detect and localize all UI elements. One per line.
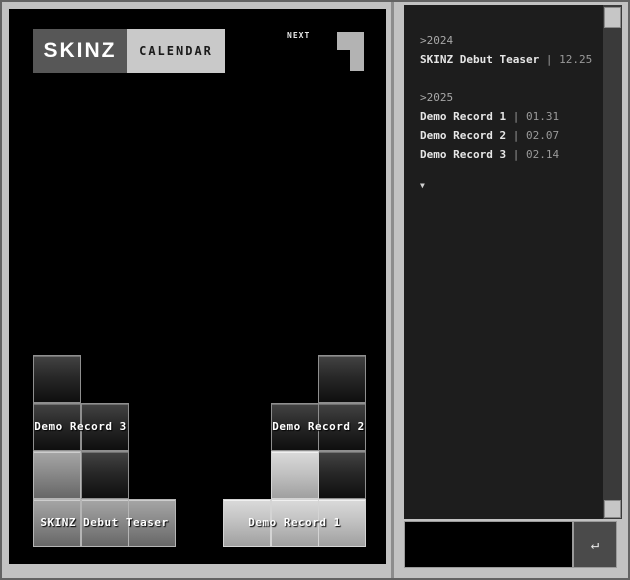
scrollbar-thumb[interactable]: [604, 7, 621, 28]
block-skinz-debut-teaser[interactable]: [81, 499, 129, 547]
timeline-entry-date: | 12.25: [539, 53, 592, 66]
timeline-list: >2024SKINZ Debut Teaser | 12.25>2025Demo…: [420, 31, 600, 193]
block-skinz-debut-teaser[interactable]: [33, 451, 81, 499]
block-demo-record-1[interactable]: [318, 499, 366, 547]
block-demo-record-1[interactable]: [223, 499, 271, 547]
scrollbar-track[interactable]: [603, 5, 622, 519]
timeline-year: >2025: [420, 88, 600, 107]
timeline-year: >2024: [420, 31, 600, 50]
timeline-entry[interactable]: Demo Record 3 | 02.14: [420, 145, 600, 164]
block-demo-record-3[interactable]: [81, 451, 129, 499]
calendar-tab-button[interactable]: CALENDAR: [127, 29, 225, 73]
block-skinz-debut-teaser[interactable]: [33, 499, 81, 547]
timeline-entry[interactable]: SKINZ Debut Teaser | 12.25: [420, 50, 600, 69]
timeline-group: >2024SKINZ Debut Teaser | 12.25: [420, 31, 600, 69]
block-demo-record-1[interactable]: [271, 451, 319, 499]
timeline-entry-name: Demo Record 1: [420, 110, 506, 123]
next-piece-label: NEXT: [287, 31, 310, 40]
next-piece-icon-stem: [350, 50, 364, 71]
block-demo-record-3[interactable]: [33, 355, 81, 403]
timeline-entry[interactable]: Demo Record 2 | 02.07: [420, 126, 600, 145]
enter-icon: ↵: [591, 537, 599, 553]
timeline-group: >2025Demo Record 1 | 01.31Demo Record 2 …: [420, 88, 600, 164]
next-piece-icon-bar: [337, 32, 364, 50]
timeline-entry-date: | 02.07: [506, 129, 559, 142]
scrollbar-down-button[interactable]: [604, 500, 621, 518]
panel-separator: [391, 2, 394, 578]
block-demo-record-2[interactable]: [271, 403, 319, 451]
timeline-panel: >2024SKINZ Debut Teaser | 12.25>2025Demo…: [404, 5, 622, 519]
block-demo-record-1[interactable]: [271, 499, 319, 547]
timeline-entry[interactable]: Demo Record 1 | 01.31: [420, 107, 600, 126]
brand-button[interactable]: SKINZ: [33, 29, 127, 73]
timeline-entry-name: Demo Record 3: [420, 148, 506, 161]
message-input[interactable]: [404, 521, 573, 568]
timeline-entry-date: | 02.14: [506, 148, 559, 161]
app-window: SKINZ CALENDAR NEXT Demo Record 3SKINZ D…: [0, 0, 630, 580]
more-indicator-icon: ▼: [420, 181, 600, 193]
game-board-panel: SKINZ CALENDAR NEXT Demo Record 3SKINZ D…: [9, 9, 386, 564]
block-demo-record-3[interactable]: [33, 403, 81, 451]
enter-button[interactable]: ↵: [573, 521, 617, 568]
block-demo-record-2[interactable]: [318, 451, 366, 499]
timeline-entry-name: SKINZ Debut Teaser: [420, 53, 539, 66]
timeline-entry-name: Demo Record 2: [420, 129, 506, 142]
block-demo-record-2[interactable]: [318, 403, 366, 451]
block-demo-record-3[interactable]: [81, 403, 129, 451]
block-demo-record-2[interactable]: [318, 355, 366, 403]
block-skinz-debut-teaser[interactable]: [128, 499, 176, 547]
timeline-entry-date: | 01.31: [506, 110, 559, 123]
